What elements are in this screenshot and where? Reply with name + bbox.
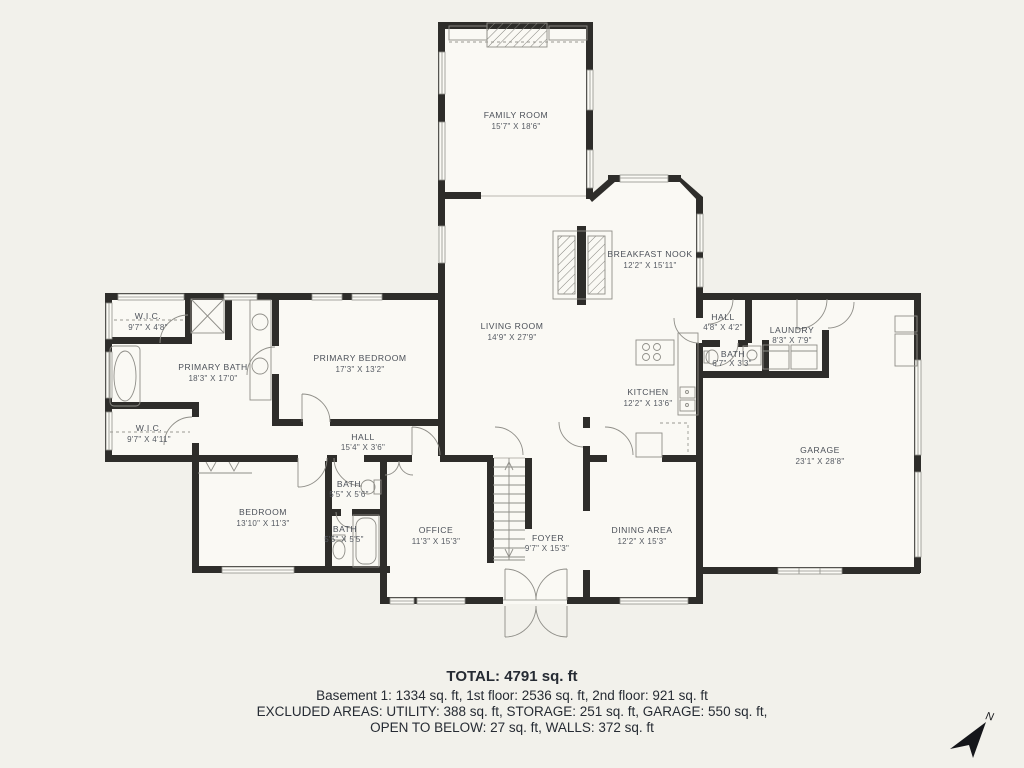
room-label-foyer: FOYER	[532, 533, 564, 543]
room-dims-wic-top: 9'7" X 4'8"	[128, 323, 168, 332]
room-dims-living-room: 14'9" X 27'9"	[487, 333, 536, 342]
summary-total: TOTAL: 4791 sq. ft	[0, 668, 1024, 685]
room-dims-laundry: 8'3" X 7'9"	[772, 336, 812, 345]
summary-open-below: OPEN TO BELOW: 27 sq. ft, WALLS: 372 sq.…	[0, 720, 1024, 736]
room-label-hall-right: HALL	[711, 312, 735, 322]
room-label-primary-bath: PRIMARY BATH	[178, 362, 248, 372]
room-label-family-room: FAMILY ROOM	[484, 110, 548, 120]
room-dims-hall: 15'4" X 3'6"	[341, 443, 385, 452]
room-label-dining-area: DINING AREA	[612, 525, 673, 535]
room-label-hall: HALL	[351, 432, 375, 442]
room-label-living-room: LIVING ROOM	[481, 321, 544, 331]
room-dims-hall-right: 4'8" X 4'2"	[703, 323, 743, 332]
room-label-bedroom: BEDROOM	[239, 507, 287, 517]
room-dims-bath-1: 5'5" X 5'6"	[329, 490, 369, 499]
room-dims-bedroom: 13'10" X 11'3"	[236, 519, 289, 528]
room-label-bath-1: BATH	[337, 479, 361, 489]
room-dims-office: 11'3" X 15'3"	[412, 537, 461, 546]
room-dims-breakfast-nook: 12'2" X 15'11"	[623, 261, 676, 270]
room-dims-dining-area: 12'2" X 15'3"	[617, 537, 666, 546]
room-label-garage: GARAGE	[800, 445, 840, 455]
room-label-office: OFFICE	[419, 525, 454, 535]
room-dims-garage: 23'1" X 28'8"	[795, 457, 844, 466]
room-dims-foyer: 9'7" X 15'3"	[525, 544, 569, 553]
room-label-bath-2: BATH	[333, 524, 357, 534]
room-dims-bath-2: 5'5" X 5'5"	[324, 535, 364, 544]
floor-plan-drawing: FAMILY ROOM 15'7" X 18'6" BREAKFAST NOOK…	[0, 0, 1024, 768]
room-label-kitchen: KITCHEN	[627, 387, 668, 397]
front-door-opening	[503, 597, 567, 604]
room-dims-wic-bottom: 9'7" X 4'11"	[127, 435, 171, 444]
floor-plan-canvas: FAMILY ROOM 15'7" X 18'6" BREAKFAST NOOK…	[0, 0, 1024, 768]
summary-excluded: EXCLUDED AREAS: UTILITY: 388 sq. ft, STO…	[0, 704, 1024, 720]
room-label-wic-top: W.I.C.	[135, 311, 161, 321]
summary: TOTAL: 4791 sq. ft Basement 1: 1334 sq. …	[0, 668, 1024, 736]
summary-floors: Basement 1: 1334 sq. ft, 1st floor: 2536…	[0, 688, 1024, 704]
room-dims-kitchen: 12'2" X 13'6"	[623, 399, 672, 408]
room-label-bath-right: BATH	[721, 349, 745, 359]
room-label-wic-bottom: W.I.C.	[136, 423, 162, 433]
room-dims-primary-bedroom: 17'3" X 13'2"	[335, 365, 384, 374]
room-label-breakfast-nook: BREAKFAST NOOK	[607, 249, 692, 259]
room-label-laundry: LAUNDRY	[770, 325, 814, 335]
room-dims-bath-right: 6'7" X 3'3"	[712, 359, 752, 368]
room-label-primary-bedroom: PRIMARY BEDROOM	[313, 353, 406, 363]
room-dims-family-room: 15'7" X 18'6"	[491, 122, 540, 131]
room-dims-primary-bath: 18'3" X 17'0"	[188, 374, 237, 383]
